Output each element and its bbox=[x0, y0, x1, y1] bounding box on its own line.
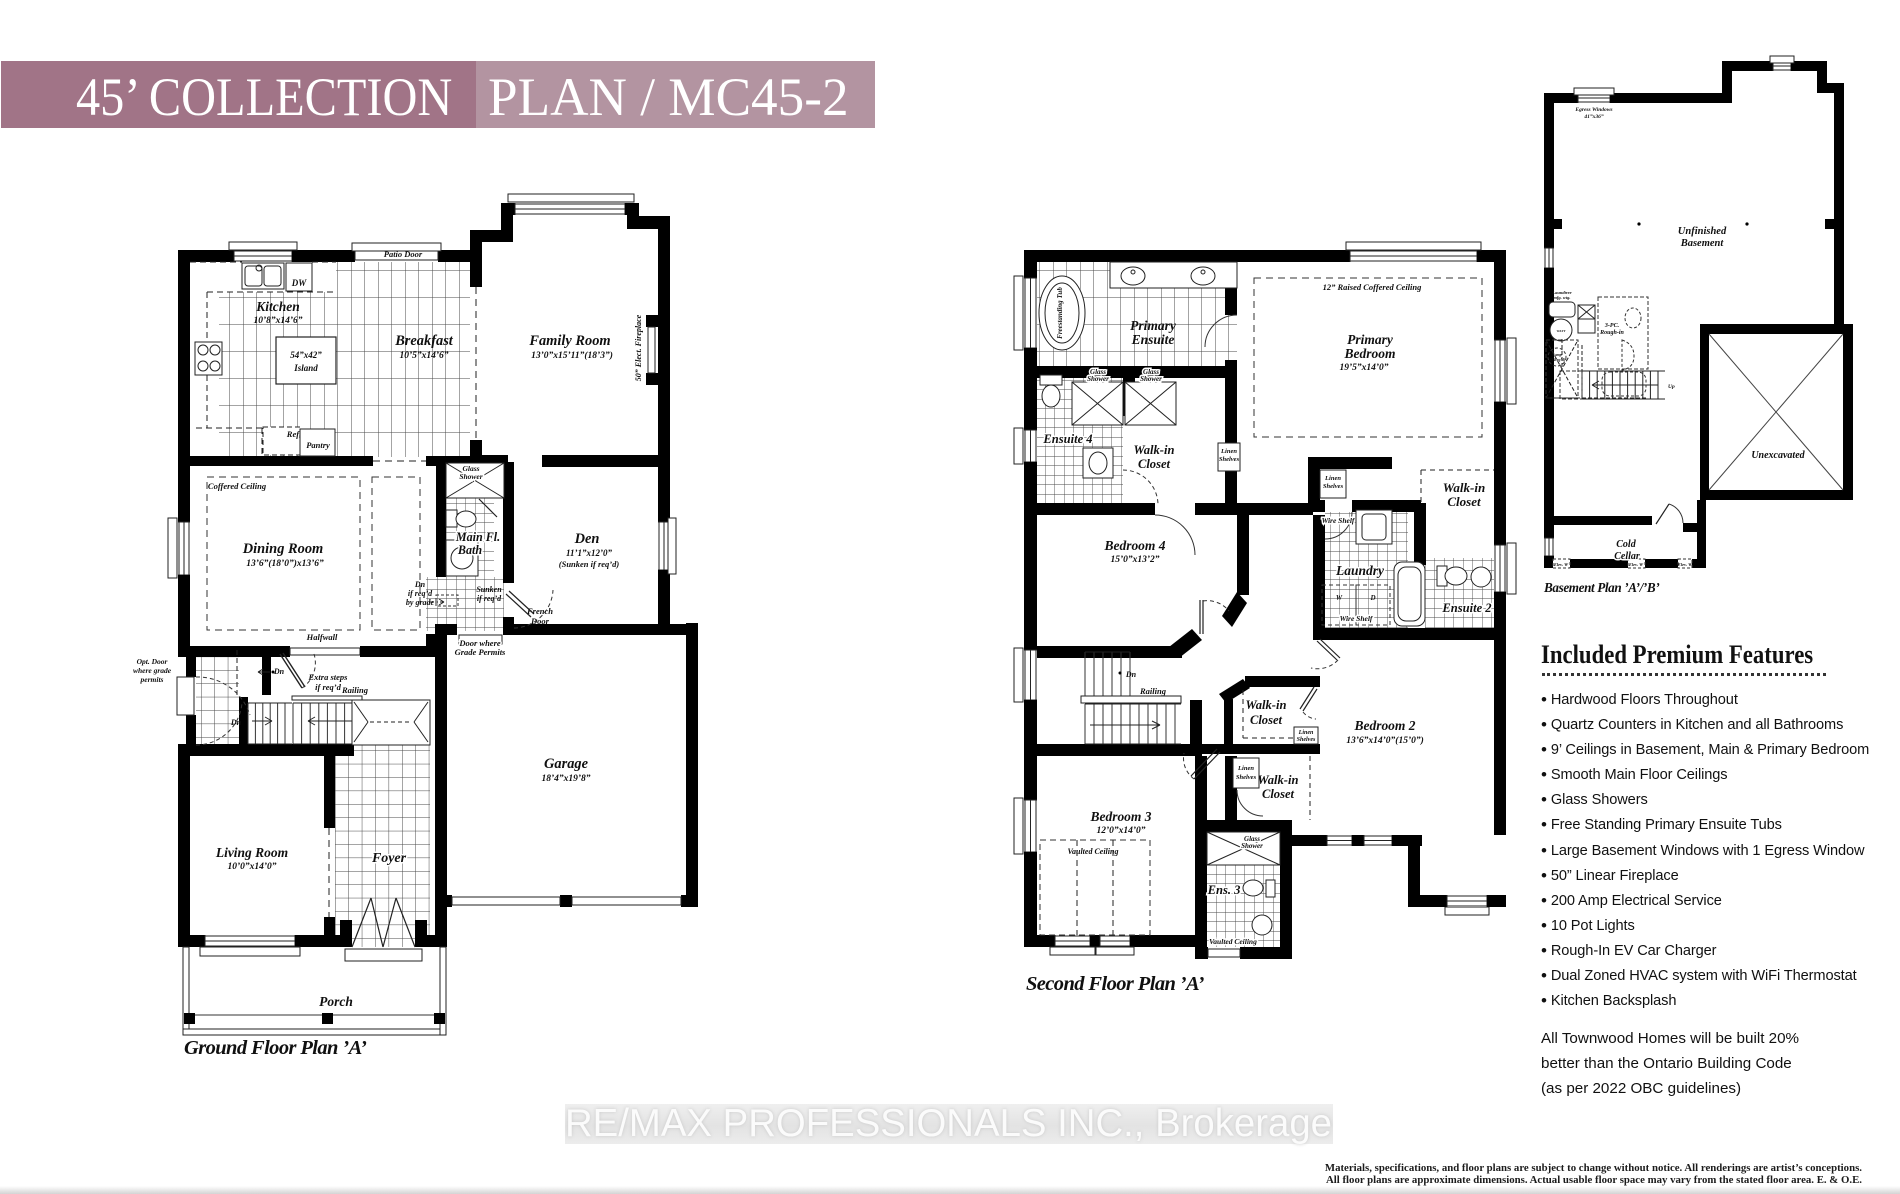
svg-text:Wire Shelf: Wire Shelf bbox=[1340, 614, 1374, 623]
svg-text:10’5”x14’6”: 10’5”x14’6” bbox=[399, 351, 448, 361]
svg-text:Sunken: Sunken bbox=[476, 585, 502, 594]
svg-text:Egress Windows: Egress Windows bbox=[1574, 107, 1612, 113]
svg-text:Main Fl.: Main Fl. bbox=[455, 530, 500, 544]
svg-text:Closet: Closet bbox=[1250, 713, 1283, 727]
svg-text:Shower: Shower bbox=[459, 472, 482, 481]
svg-text:D: D bbox=[1369, 594, 1375, 602]
svg-text:Walk-in: Walk-in bbox=[1443, 480, 1485, 495]
svg-text:Ensuite 4: Ensuite 4 bbox=[1042, 432, 1092, 446]
svg-text:Linen: Linen bbox=[1298, 730, 1314, 736]
svg-text:Shelves: Shelves bbox=[1297, 737, 1316, 743]
svg-text:Elev. W: Elev. W bbox=[1628, 562, 1644, 567]
svg-text:Cold: Cold bbox=[1616, 539, 1636, 550]
svg-text:Closet: Closet bbox=[1447, 494, 1481, 509]
svg-text:54”x42”: 54”x42” bbox=[290, 350, 322, 360]
svg-text:Cellar: Cellar bbox=[1614, 551, 1640, 562]
svg-text:Shower: Shower bbox=[1241, 842, 1263, 850]
svg-text:Walk-in: Walk-in bbox=[1134, 443, 1175, 457]
svg-text:Vaulted Ceiling: Vaulted Ceiling bbox=[1068, 847, 1119, 856]
svg-text:Garage: Garage bbox=[544, 756, 589, 772]
svg-text:Railing: Railing bbox=[1139, 686, 1167, 696]
svg-text:Kitchen: Kitchen bbox=[255, 299, 299, 314]
svg-text:Primary: Primary bbox=[1347, 332, 1394, 347]
svg-text:W: W bbox=[1336, 594, 1343, 602]
svg-text:Railing: Railing bbox=[341, 685, 369, 695]
svg-text:Dn: Dn bbox=[414, 580, 426, 589]
svg-text:permits: permits bbox=[140, 675, 164, 684]
svg-text:Shelves: Shelves bbox=[1323, 483, 1344, 490]
svg-text:Bedroom 3: Bedroom 3 bbox=[1089, 809, 1151, 824]
svg-text:(Sunken if req’d): (Sunken if req’d) bbox=[559, 559, 620, 569]
svg-text:Extra steps: Extra steps bbox=[308, 672, 349, 682]
svg-text:Foyer: Foyer bbox=[371, 851, 407, 866]
svg-text:Up: Up bbox=[1668, 384, 1675, 390]
svg-text:Rough-in: Rough-in bbox=[1599, 330, 1624, 336]
svg-text:Vaulted Ceiling: Vaulted Ceiling bbox=[1209, 937, 1257, 946]
svg-text:11’1”x12’0”: 11’1”x12’0” bbox=[566, 548, 612, 558]
svg-text:12’0”x14’0”: 12’0”x14’0” bbox=[1096, 826, 1145, 836]
svg-text:12” Raised Coffered Ceiling: 12” Raised Coffered Ceiling bbox=[1323, 282, 1423, 292]
svg-text:Ground Floor Plan ’A’: Ground Floor Plan ’A’ bbox=[184, 1037, 367, 1059]
svg-text:41”x36”: 41”x36” bbox=[1583, 114, 1604, 120]
svg-text:Closet: Closet bbox=[1138, 457, 1171, 471]
svg-text:Walk-in: Walk-in bbox=[1258, 773, 1299, 787]
svg-text:Bedroom 4: Bedroom 4 bbox=[1103, 538, 1165, 553]
svg-text:Freestanding Tub: Freestanding Tub bbox=[1056, 287, 1064, 339]
svg-text:Porch: Porch bbox=[319, 994, 353, 1009]
svg-text:13’6”x14’0”(15’0”): 13’6”x14’0”(15’0”) bbox=[1346, 735, 1424, 746]
svg-text:Linen: Linen bbox=[1237, 765, 1254, 772]
svg-text:Linen: Linen bbox=[1324, 475, 1341, 482]
svg-text:Basement: Basement bbox=[1680, 238, 1725, 249]
svg-text:Unexcavated: Unexcavated bbox=[1751, 450, 1805, 461]
svg-text:WATT: WATT bbox=[1556, 329, 1566, 333]
svg-text:Elev. W: Elev. W bbox=[1553, 562, 1569, 567]
svg-text:Pantry: Pantry bbox=[306, 440, 330, 450]
svg-text:mfg. wtg.: mfg. wtg. bbox=[1553, 295, 1570, 300]
svg-text:Ref,: Ref, bbox=[286, 429, 301, 439]
svg-text:Den: Den bbox=[574, 531, 600, 547]
svg-text:Shelves: Shelves bbox=[1219, 456, 1240, 463]
svg-text:Dn: Dn bbox=[273, 667, 285, 676]
svg-text:3-PC.: 3-PC. bbox=[1604, 323, 1620, 329]
svg-text:Closet: Closet bbox=[1262, 787, 1295, 801]
svg-text:10’0”x14’0”: 10’0”x14’0” bbox=[227, 862, 276, 872]
svg-text:13’0”x15’11”(18’3”): 13’0”x15’11”(18’3”) bbox=[531, 350, 613, 361]
svg-text:Door: Door bbox=[530, 616, 550, 626]
svg-text:if req’d: if req’d bbox=[408, 589, 433, 598]
svg-text:18’4”x19’8”: 18’4”x19’8” bbox=[541, 774, 590, 784]
svg-text:50” Elect. Fireplace: 50” Elect. Fireplace bbox=[634, 314, 643, 381]
svg-text:13’6”(18’0”)x13’6”: 13’6”(18’0”)x13’6” bbox=[246, 558, 324, 569]
svg-text:Primary: Primary bbox=[1130, 318, 1177, 333]
svg-text:Unfinished: Unfinished bbox=[1678, 226, 1727, 237]
svg-text:Halfwall: Halfwall bbox=[306, 632, 338, 642]
svg-text:Linen: Linen bbox=[1220, 448, 1237, 455]
svg-text:Dn: Dn bbox=[230, 718, 242, 727]
svg-text:Ens. 3: Ens. 3 bbox=[1207, 883, 1241, 897]
svg-text:if req’d: if req’d bbox=[315, 682, 341, 692]
svg-text:Patio Door: Patio Door bbox=[384, 249, 423, 259]
svg-text:Coffered Ceiling: Coffered Ceiling bbox=[208, 481, 267, 491]
svg-text:Shower: Shower bbox=[1087, 375, 1109, 383]
svg-text:Shower: Shower bbox=[1140, 375, 1162, 383]
svg-text:Family Room: Family Room bbox=[528, 333, 610, 349]
svg-text:(If Req’d): (If Req’d) bbox=[1549, 357, 1566, 362]
svg-text:Second Floor Plan ’A’: Second Floor Plan ’A’ bbox=[1026, 973, 1205, 995]
svg-text:19’5”x14’0”: 19’5”x14’0” bbox=[1339, 363, 1388, 373]
svg-text:10’8”x14’6”: 10’8”x14’6” bbox=[253, 316, 302, 326]
svg-text:Island: Island bbox=[293, 363, 318, 373]
svg-text:Bedroom: Bedroom bbox=[1344, 346, 1396, 361]
svg-text:DW: DW bbox=[291, 278, 307, 288]
svg-text:if req’d: if req’d bbox=[477, 594, 502, 603]
svg-text:Shelves: Shelves bbox=[1236, 774, 1257, 781]
svg-text:Ensuite 2: Ensuite 2 bbox=[1441, 601, 1491, 615]
svg-text:French: French bbox=[526, 606, 553, 616]
svg-text:Grade Permits: Grade Permits bbox=[455, 647, 506, 657]
svg-text:Elev. W: Elev. W bbox=[1677, 562, 1693, 567]
svg-text:Bedroom 2: Bedroom 2 bbox=[1353, 718, 1415, 733]
svg-text:Wire Shelf: Wire Shelf bbox=[1322, 516, 1356, 525]
svg-text:Laundry: Laundry bbox=[1335, 563, 1385, 578]
svg-text:Breakfast: Breakfast bbox=[394, 333, 454, 349]
svg-text:Walk-in: Walk-in bbox=[1246, 698, 1287, 712]
svg-text:Opt. Door: Opt. Door bbox=[137, 657, 168, 666]
svg-text:Bath: Bath bbox=[457, 543, 482, 557]
svg-text:15’0”x13’2”: 15’0”x13’2” bbox=[1110, 555, 1159, 565]
svg-text:where grade: where grade bbox=[133, 666, 172, 675]
svg-text:Living Room: Living Room bbox=[215, 845, 288, 860]
svg-text:Dining Room: Dining Room bbox=[242, 541, 323, 557]
svg-text:Ensuite: Ensuite bbox=[1131, 332, 1175, 347]
svg-text:Dn: Dn bbox=[1125, 670, 1137, 679]
svg-text:Basement Plan ’A’/’B’: Basement Plan ’A’/’B’ bbox=[1543, 580, 1660, 595]
